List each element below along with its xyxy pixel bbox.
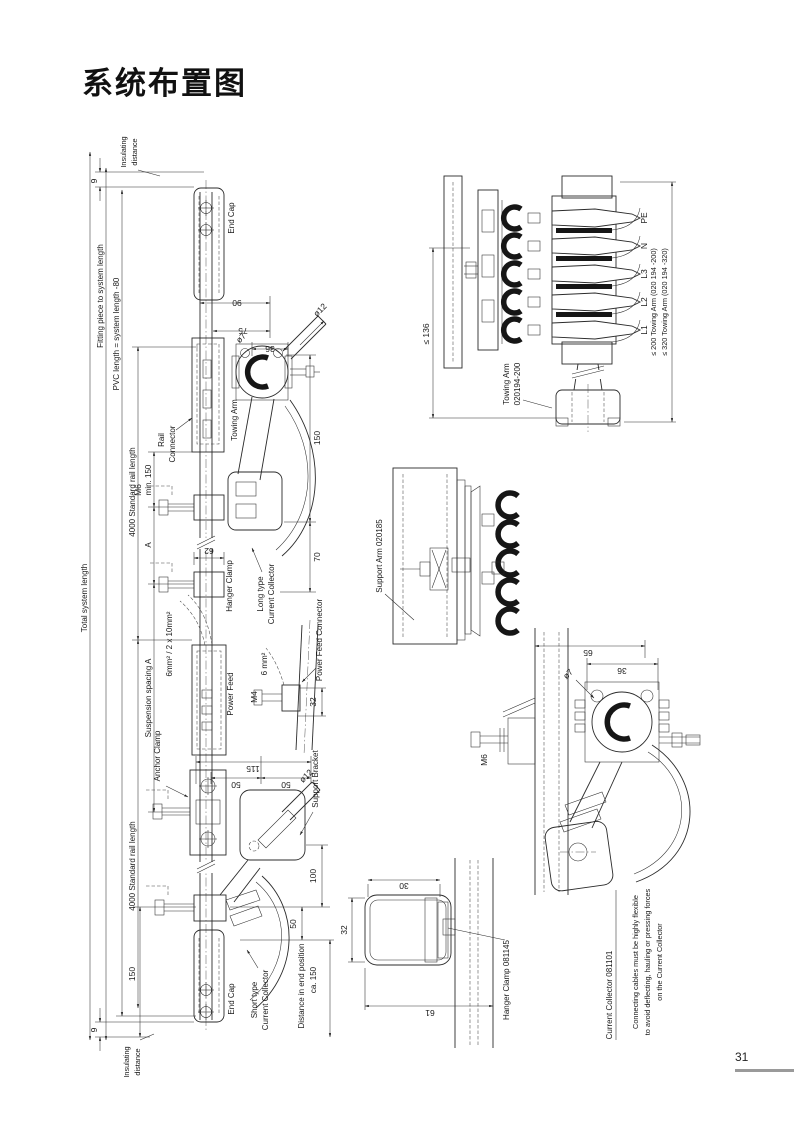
end-cap-bottom-label: End Cap bbox=[227, 983, 236, 1015]
dim-62: 62 bbox=[204, 546, 214, 556]
hanger-clamp-1 bbox=[150, 486, 224, 520]
dim-9-top: 9 bbox=[89, 178, 99, 183]
towing-arm-part-label: Towing Arm bbox=[502, 363, 511, 405]
pole-label-l3: L3 bbox=[639, 269, 649, 279]
dim-136: ≤ 136 bbox=[421, 323, 431, 344]
cable-6mm2-label: 6 mm² bbox=[260, 652, 269, 675]
hanger-clamp-drawing: 30 32 61 Hanger Clamp 081145 bbox=[339, 858, 511, 1048]
short-collector-label: Short type bbox=[250, 981, 259, 1018]
dim-dia7-collector: ø7 bbox=[561, 667, 575, 681]
dim-90: 90 bbox=[232, 298, 242, 308]
current-collector-part-label: Current Collector 081101 bbox=[605, 950, 614, 1039]
dim-a: A bbox=[144, 542, 153, 548]
dim-70: 70 bbox=[312, 552, 322, 562]
dim-m4: M4 bbox=[249, 691, 259, 703]
technical-drawing: Insulating distance 9 End Cap Fitting pi… bbox=[0, 0, 794, 1123]
dim-towing-arm-320: ≤ 320 Towing Arm (020 194 -320) bbox=[660, 248, 669, 356]
dim-36: 36 bbox=[265, 344, 275, 354]
hanger-clamp-2 bbox=[150, 536, 224, 597]
pole-label-l1: L1 bbox=[639, 325, 649, 335]
dim-115: 115 bbox=[246, 764, 260, 774]
dim-min-150: min. 150 bbox=[144, 464, 153, 495]
long-collector-label: Current Collector bbox=[267, 563, 276, 624]
dim-150-bottom: 150 bbox=[127, 967, 137, 981]
insulating-distance-top-label: distance bbox=[130, 138, 139, 165]
end-cap-bottom bbox=[194, 930, 224, 1022]
rail-connector-label: Connector bbox=[168, 425, 177, 462]
distance-end-position-label: ca. 150 bbox=[309, 966, 318, 993]
towing-arm-label: Towing Arm bbox=[230, 399, 239, 441]
hanger-clamp-part-label: Hanger Clamp 081145 bbox=[502, 940, 511, 1020]
dim-50b: 50 bbox=[281, 780, 291, 790]
dim-65: 65 bbox=[583, 648, 593, 658]
support-bracket-label: Support Bracket bbox=[311, 750, 320, 808]
dim-suspension-spacing: Suspension spacing A bbox=[144, 658, 153, 737]
footer-rule bbox=[735, 1069, 794, 1072]
end-cap-top bbox=[194, 188, 224, 300]
dim-100: 100 bbox=[308, 869, 318, 883]
dim-32-clamp: 32 bbox=[339, 925, 349, 935]
dim-61: 61 bbox=[425, 1008, 435, 1018]
dim-total-system-length: Total system length bbox=[80, 564, 89, 632]
dim-50c: 50 bbox=[288, 919, 298, 929]
towing-arm-part-label: 020194-200 bbox=[513, 362, 522, 405]
dim-towing-arm-200: ≤ 200 Towing Arm (020 194 -200) bbox=[649, 248, 658, 356]
dim-32-pfc: 32 bbox=[308, 697, 318, 707]
rail-connector-label: Rail bbox=[157, 433, 166, 447]
hanger-clamp-label: Hanger Clamp bbox=[225, 560, 234, 612]
page-number: 31 bbox=[735, 1050, 748, 1064]
dim-9-bottom: 9 bbox=[89, 1027, 99, 1032]
power-feed-connector-label: Power Feed Connector bbox=[315, 599, 324, 682]
catalog-page: 系统布置图 bbox=[0, 0, 794, 1123]
cable-note: on the Current Collector bbox=[655, 923, 664, 1001]
cable-note: to avoid deflecting, hauling or pressing… bbox=[643, 888, 652, 1035]
dim-36-collector: 36 bbox=[617, 666, 627, 676]
insulating-distance-bottom-label: distance bbox=[133, 1048, 142, 1075]
power-feed-label: Power Feed bbox=[226, 672, 235, 715]
dim-dia12: ø12 bbox=[311, 301, 329, 319]
dim-50a: 50 bbox=[231, 780, 241, 790]
pole-label-n: N bbox=[639, 243, 649, 249]
dim-pvc-length: PVC length = system length -80 bbox=[112, 277, 121, 390]
insulating-distance-top-label: Insulating bbox=[119, 136, 128, 167]
cross-section-drawing: PE N L3 L2 L1 ≤ 136 ≤ 200 Towing Arm (02… bbox=[421, 176, 676, 432]
dim-30: 30 bbox=[399, 881, 409, 891]
dim-150-right: 150 bbox=[312, 431, 322, 445]
dim-m6-collector: M6 bbox=[479, 754, 489, 766]
system-layout-drawing: Insulating distance 9 End Cap Fitting pi… bbox=[80, 136, 334, 1077]
cable-spec-label: 6mm² / 2 x 10mm² bbox=[165, 611, 174, 676]
support-arm-drawing: Support Arm 020185 bbox=[375, 468, 518, 644]
dim-m6: M6 bbox=[133, 484, 143, 496]
anchor-clamp-label: Anchor Clamp bbox=[153, 730, 162, 781]
dim-standard-rail-2: 4000 Standard rail length bbox=[128, 821, 137, 910]
dim-fitting-piece: Fitting piece to system length bbox=[96, 244, 105, 348]
support-arm-label: Support Arm 020185 bbox=[375, 519, 384, 593]
long-collector-label: Long type bbox=[256, 576, 265, 612]
distance-end-position-label: Distance in end position bbox=[297, 944, 306, 1029]
short-collector-label: Current Collector bbox=[261, 969, 270, 1030]
end-cap-top-label: End Cap bbox=[227, 202, 236, 234]
power-feed bbox=[180, 595, 226, 755]
anchor-clamp bbox=[146, 770, 226, 855]
pole-label-pe: PE bbox=[639, 212, 649, 224]
insulating-distance-bottom-label: Insulating bbox=[122, 1046, 131, 1077]
support-bracket bbox=[240, 782, 320, 860]
cable-note: Connecting cables must be highly flexibl… bbox=[631, 895, 640, 1029]
pole-label-l2: L2 bbox=[639, 297, 649, 307]
